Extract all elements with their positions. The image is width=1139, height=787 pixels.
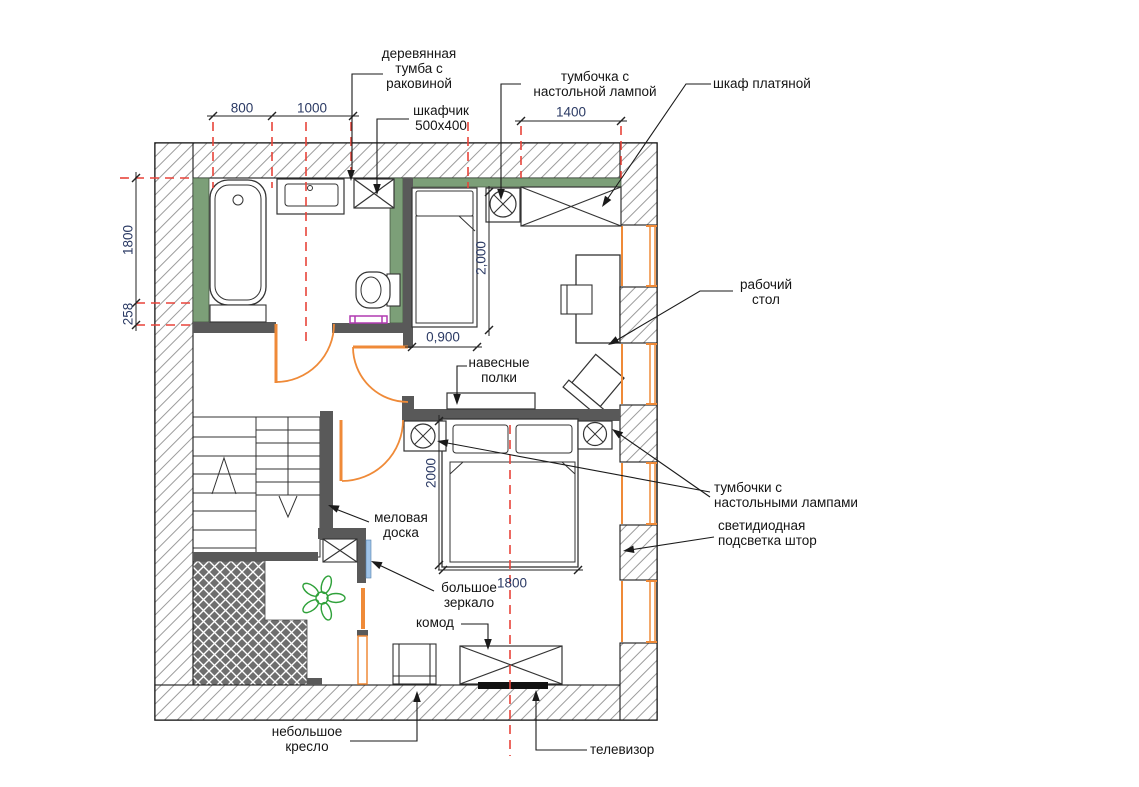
pillow-right <box>516 425 572 453</box>
large-mirror <box>366 540 371 578</box>
pillow <box>416 191 473 216</box>
panel-cap <box>357 630 368 636</box>
bathtub <box>210 180 266 322</box>
tv-screen <box>478 682 548 689</box>
wall-bottom-stub <box>307 678 322 685</box>
green-strip-bath-left <box>193 178 209 322</box>
label-desk: рабочий стол <box>740 277 792 307</box>
wall-top <box>155 143 657 178</box>
orange-panel <box>358 636 367 684</box>
label-mirror: большое зеркало <box>441 580 497 610</box>
dim-2000-bed2: 2000 <box>424 458 439 488</box>
dim-0900: 0,900 <box>426 330 460 345</box>
dim-1000: 1000 <box>297 101 327 116</box>
dresser <box>460 646 562 684</box>
label-wardrobe: шкаф платяной <box>713 76 811 91</box>
label-nightstand-top: тумбочка с настольной лампой <box>533 69 656 99</box>
dim-258: 258 <box>121 303 136 326</box>
wall-right-pier-2 <box>620 405 657 462</box>
label-vanity: деревянная тумба с раковиной <box>382 46 456 91</box>
vanity-sink <box>277 179 344 214</box>
label-chalkboard: меловая доска <box>374 510 428 540</box>
dim-1800-bed2: 1800 <box>497 576 527 591</box>
wall-stair <box>320 411 333 540</box>
label-cabinet: шкафчик 500х400 <box>413 103 469 133</box>
staircase <box>193 417 320 557</box>
wall-bath-south-left <box>193 322 276 333</box>
wall-right-pier-3 <box>620 525 657 580</box>
label-led-curtain: светидиодная подсветка штор <box>718 518 817 548</box>
dim-800: 800 <box>231 101 254 116</box>
wall-right-corner-bottom <box>620 643 657 720</box>
floor-plan-page: деревянная тумба с раковиной шкафчик 500… <box>0 0 1139 787</box>
wardrobe <box>521 187 621 226</box>
green-strip-bedroom-top <box>412 178 621 187</box>
label-nightstands: тумбочки с настольными лампами <box>714 480 858 510</box>
toilet <box>356 272 400 308</box>
orange-panel-strip <box>361 588 365 629</box>
wall-left <box>155 143 193 720</box>
table-lamp-icon <box>411 424 435 448</box>
table-lamp-icon <box>584 423 607 446</box>
wall-right-corner-top <box>620 143 657 225</box>
dim-1400: 1400 <box>556 105 586 120</box>
tub-shelf <box>210 305 266 322</box>
wall-bath-south-right <box>332 323 405 333</box>
wall-stair-bottom <box>193 552 318 561</box>
wall-corner-post <box>357 539 366 583</box>
wall-cabinet-500x400 <box>354 179 394 208</box>
wall-corner-bar <box>318 528 366 539</box>
single-bed <box>412 188 477 327</box>
nightstand-left <box>404 421 446 451</box>
towel-rail <box>350 316 387 323</box>
dim-2000-bed1: 2,000 <box>474 241 489 275</box>
dim-1800-left: 1800 <box>121 225 136 255</box>
table-lamp-icon <box>490 191 516 217</box>
nightstand-right <box>578 421 612 449</box>
label-armchair: небольшое кресло <box>272 724 343 754</box>
desk-chair <box>561 285 592 314</box>
label-shelves: навесные полки <box>469 355 530 385</box>
label-dresser: комод <box>416 615 454 630</box>
corner-crossed-box <box>323 539 357 562</box>
wall-bottom <box>155 685 657 720</box>
small-armchair <box>393 644 436 684</box>
label-tv: телевизор <box>590 742 654 757</box>
